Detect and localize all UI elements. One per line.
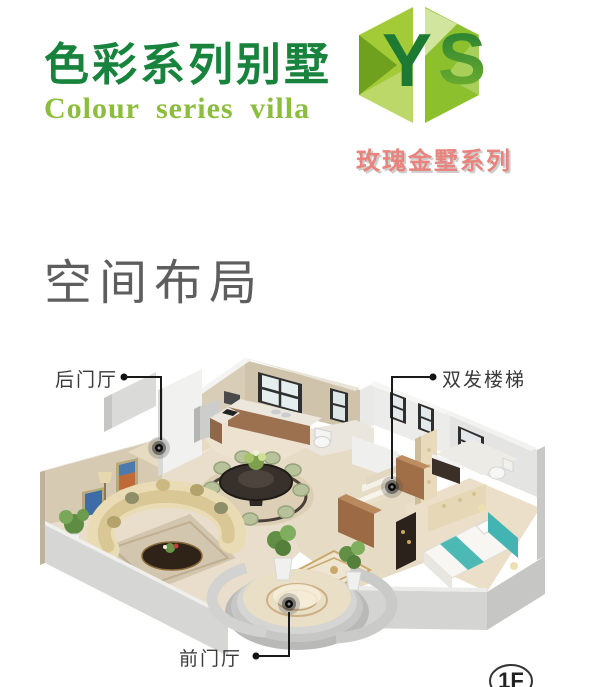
fridge: [194, 406, 200, 443]
bedside-lamp: [478, 504, 486, 512]
floor-badge-text: 1F: [498, 668, 524, 687]
floor-badge: 1F: [490, 665, 532, 687]
callout-stairs: 双发楼梯: [442, 365, 526, 392]
page: { "header": { "title_cn": "色彩系列别墅", "tit…: [0, 0, 600, 687]
front-hall-marker: [278, 593, 300, 615]
stairs-marker: [381, 476, 403, 498]
small-bath-toilet: [314, 428, 331, 448]
callout-front-hall: 前门厅: [179, 644, 242, 671]
toilet: [489, 467, 505, 479]
back-hall-marker: [148, 437, 170, 459]
tv-cabinet: [396, 512, 416, 570]
callout-back-hall: 后门厅: [55, 365, 118, 392]
sink: [271, 410, 281, 415]
small-bath-window: [330, 388, 348, 424]
floorplan-illustration: 1F: [0, 0, 600, 687]
